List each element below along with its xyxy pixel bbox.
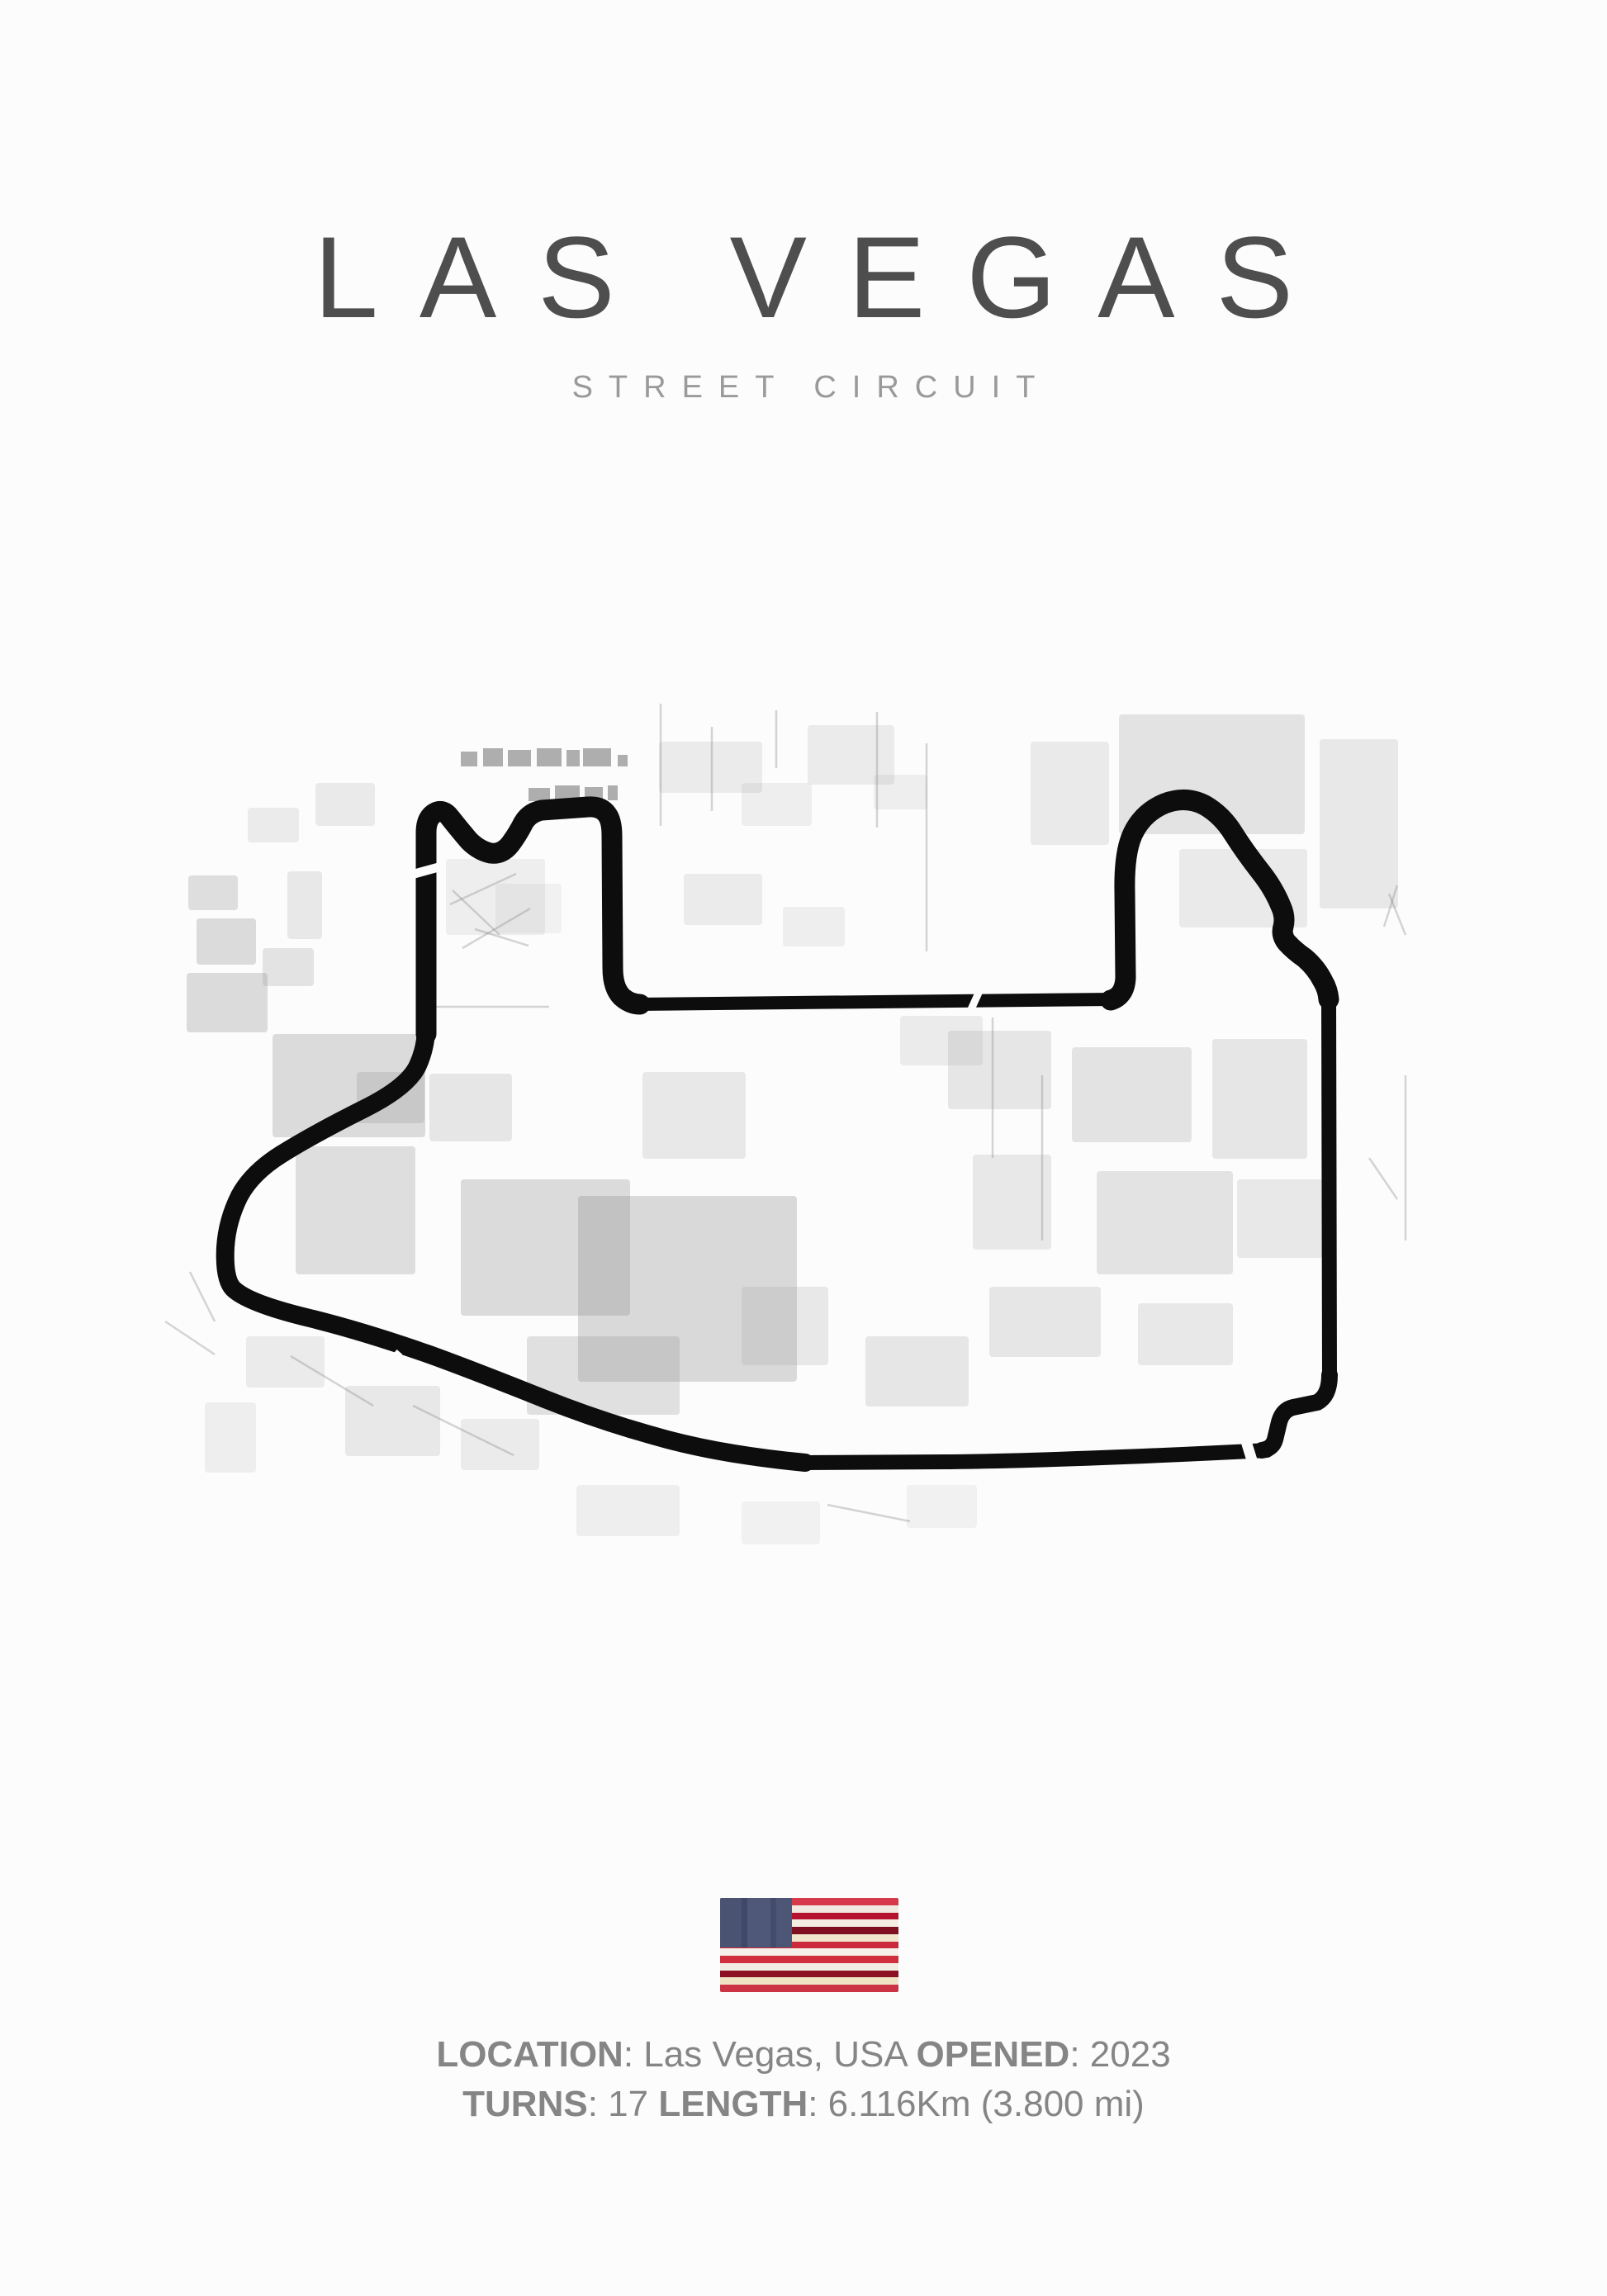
map-building-blob	[461, 1419, 539, 1470]
map-building-blob	[948, 1031, 1051, 1109]
map-building-blob	[642, 1072, 746, 1159]
flag-stripe	[720, 1985, 898, 1992]
usa-flag-canton	[720, 1898, 792, 1947]
map-detail-dash	[461, 752, 477, 766]
map-building-blob	[188, 875, 238, 910]
map-building-blob	[1031, 742, 1109, 845]
map-building-blob	[1212, 1039, 1307, 1159]
map-detail-dash	[483, 748, 503, 766]
flag-stripe	[720, 1971, 898, 1978]
map-building-blob	[742, 1501, 820, 1544]
map-building-blob	[429, 1074, 512, 1141]
map-detail-dash	[566, 750, 580, 766]
info-label: OPENED	[917, 2034, 1070, 2075]
map-building-blob	[576, 1485, 680, 1536]
map-sketch-line	[1369, 1158, 1397, 1199]
map-building-blob	[742, 1287, 828, 1365]
map-building-blob	[1138, 1303, 1233, 1365]
map-building-blob	[197, 918, 256, 965]
map-building-blob	[1097, 1171, 1233, 1274]
map-detail-dash	[529, 788, 550, 801]
flag-stripe	[720, 1963, 898, 1971]
map-building-blob	[187, 973, 268, 1032]
map-detail-dash	[508, 750, 531, 766]
map-building-blob	[263, 948, 314, 986]
map-building-blob	[1072, 1047, 1192, 1142]
map-sketch-line	[165, 1321, 215, 1354]
info-line-location-opened: LOCATION: Las Vegas, USA OPENED: 2023	[0, 2030, 1607, 2080]
track-segment	[799, 1450, 1267, 1463]
map-building-blob	[296, 1146, 415, 1274]
map-sketch-line	[190, 1272, 215, 1321]
map-detail-dash	[537, 748, 562, 766]
poster-page: LAS VEGAS STREET CIRCUIT LOCATION: Las V…	[0, 0, 1607, 2296]
map-building-blob	[865, 1336, 969, 1407]
map-building-blob	[989, 1287, 1101, 1357]
info-value: : Las Vegas, USA	[623, 2034, 917, 2075]
flag-stripe	[720, 1956, 898, 1963]
map-detail-dash	[618, 755, 628, 766]
info-label: LENGTH	[658, 2084, 808, 2124]
map-detail-dash	[583, 748, 611, 766]
map-building-blob	[783, 907, 845, 946]
map-background-dashes	[461, 748, 628, 801]
info-value: : 6.116Km (3.800 mi)	[808, 2084, 1145, 2124]
map-building-blob	[742, 783, 812, 826]
flag-stripe	[720, 1977, 898, 1985]
map-background-blobs	[187, 714, 1398, 1544]
map-building-blob	[1320, 739, 1398, 908]
track-segment	[1329, 993, 1330, 1381]
map-building-blob	[205, 1402, 256, 1473]
track-segment	[1262, 1375, 1330, 1450]
track-break	[415, 867, 438, 874]
map-detail-dash	[608, 785, 618, 800]
map-building-blob	[874, 775, 927, 809]
track-break	[1245, 1439, 1252, 1460]
circuit-info: LOCATION: Las Vegas, USA OPENED: 2023 TU…	[0, 2030, 1607, 2129]
map-building-blob	[684, 874, 762, 925]
usa-flag-icon	[720, 1898, 898, 1992]
map-sketch-line	[827, 1505, 910, 1521]
map-building-blob	[907, 1485, 977, 1528]
track-break	[385, 1352, 400, 1369]
info-label: TURNS	[462, 2084, 588, 2124]
map-building-blob	[287, 871, 322, 939]
track-segment	[636, 999, 1113, 1004]
info-line-turns-length: TURNS: 17 LENGTH: 6.116Km (3.800 mi)	[0, 2080, 1607, 2129]
map-building-blob	[246, 1336, 325, 1388]
map-building-blob	[1237, 1179, 1324, 1258]
info-value: : 17	[588, 2084, 659, 2124]
map-building-blob	[315, 783, 375, 826]
map-building-blob	[248, 808, 299, 842]
info-value: : 2023	[1069, 2034, 1170, 2075]
map-building-blob	[973, 1155, 1051, 1250]
flag-stripe	[720, 1948, 898, 1956]
info-label: LOCATION	[436, 2034, 623, 2075]
